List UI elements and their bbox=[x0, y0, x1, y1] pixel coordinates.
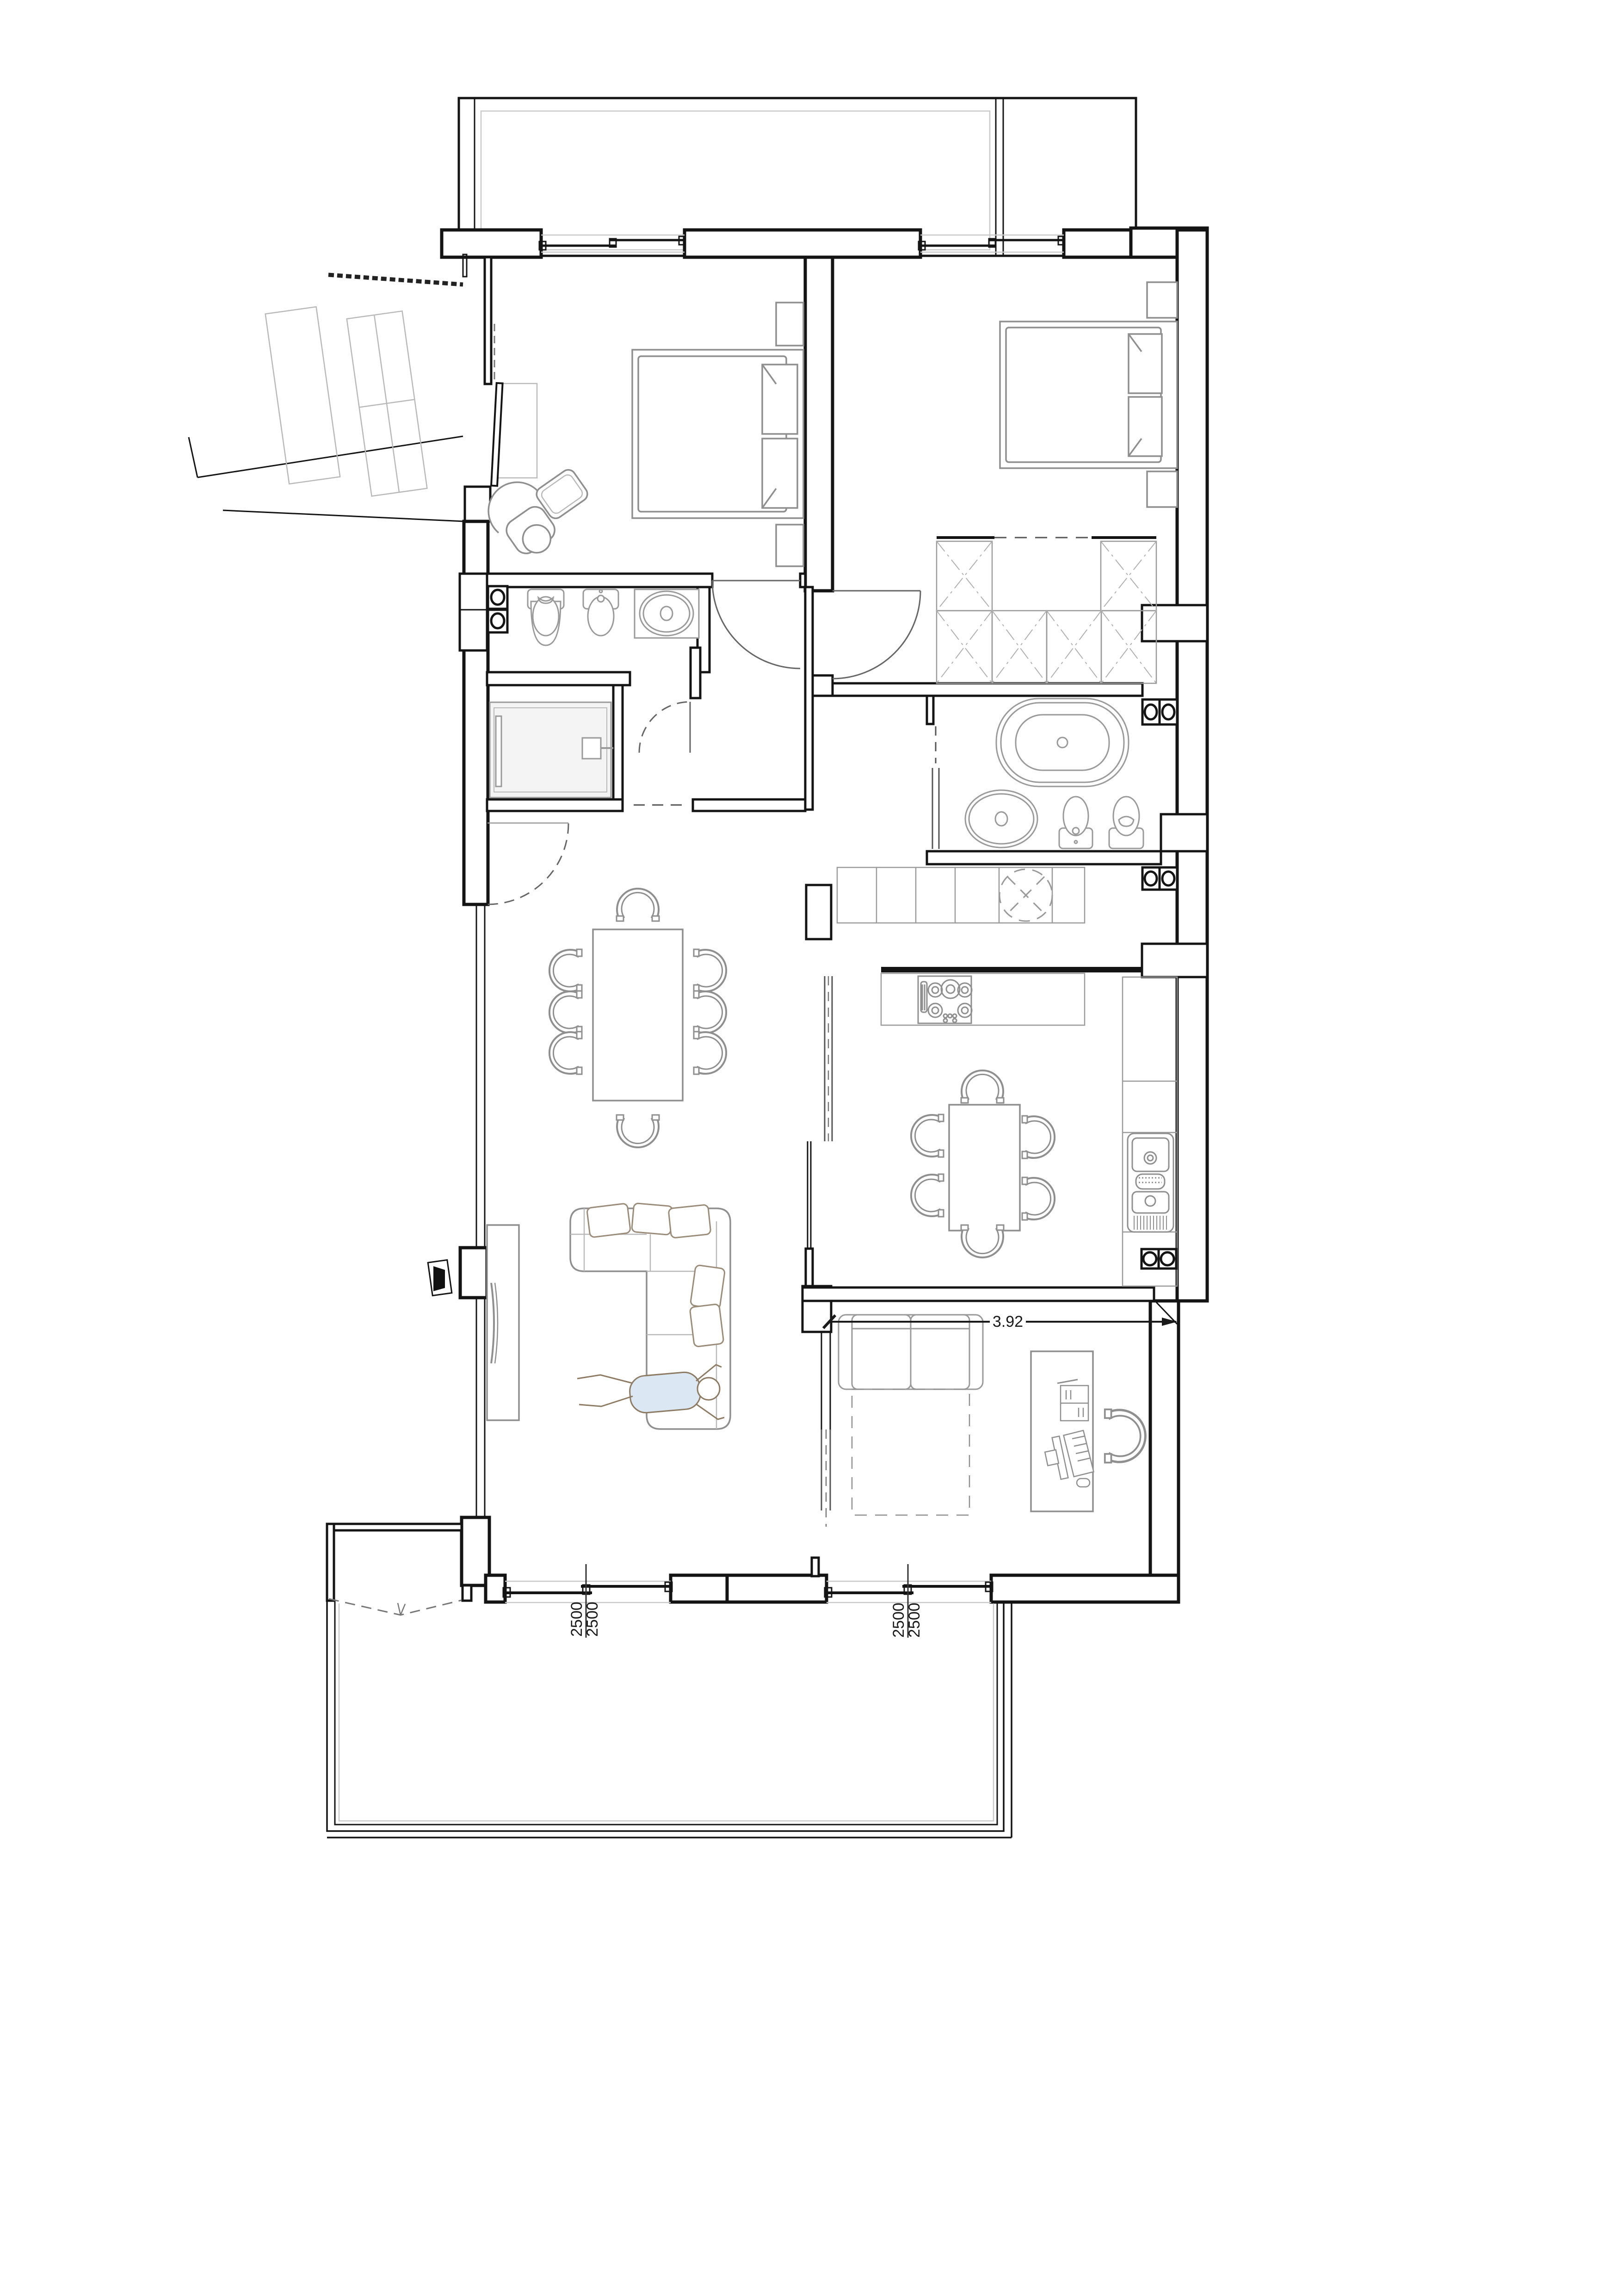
washbasin bbox=[635, 589, 699, 638]
wall-hall-right bbox=[805, 587, 813, 810]
upper-cabinets bbox=[837, 867, 1085, 923]
balcony-store bbox=[327, 1524, 462, 1601]
tv-console bbox=[487, 1225, 519, 1420]
closet bbox=[937, 538, 1156, 683]
toilet bbox=[528, 589, 564, 645]
bedroom2 bbox=[833, 282, 1177, 679]
wall-segment bbox=[727, 1575, 827, 1602]
wall-left-upper bbox=[485, 257, 491, 384]
wall-left-pier bbox=[460, 1248, 487, 1298]
kitchen-table-set bbox=[911, 1071, 1055, 1257]
door-swing-dashed bbox=[639, 702, 690, 753]
kitchen-sink bbox=[1128, 1133, 1173, 1232]
nightstand bbox=[1147, 282, 1177, 318]
bathroom2 bbox=[932, 699, 1177, 849]
wall-pier bbox=[486, 1575, 505, 1602]
nightstand bbox=[776, 303, 803, 346]
entry-mat bbox=[497, 384, 537, 478]
gas-hob bbox=[918, 976, 972, 1023]
washer-valves-kitchen bbox=[1142, 867, 1177, 890]
shower-control bbox=[582, 738, 601, 759]
washer-valves-sink bbox=[1142, 1249, 1176, 1269]
nightstand bbox=[776, 525, 803, 566]
desk bbox=[1031, 1351, 1093, 1511]
entry-wall-line bbox=[223, 510, 464, 521]
wall-bath2-bottom bbox=[927, 851, 1161, 864]
sofa-bed-open-dashed bbox=[852, 1389, 969, 1515]
entry-door[interactable] bbox=[491, 383, 503, 486]
wall-hall-bottom bbox=[693, 799, 805, 811]
wall-hall-bottom bbox=[487, 799, 623, 811]
window-dim-label: 2500 bbox=[568, 1602, 586, 1637]
toilet bbox=[1109, 797, 1143, 848]
living-door-swing bbox=[488, 823, 568, 904]
tall-cabinets-right bbox=[1123, 977, 1177, 1286]
hall bbox=[488, 823, 568, 904]
window-dim-label: 2500 bbox=[890, 1603, 907, 1638]
boundary-zigzag bbox=[328, 275, 463, 285]
wall-pier bbox=[671, 1575, 727, 1602]
wall-pier bbox=[442, 230, 541, 257]
counter bbox=[881, 973, 1085, 1025]
balcony-bottom bbox=[327, 1524, 1012, 1838]
floor-plan-page: 3.92 2500 2500 2500 2500 bbox=[0, 0, 1623, 2296]
dining-table bbox=[593, 929, 683, 1101]
dining-set bbox=[549, 889, 726, 1147]
wall-right-office bbox=[1150, 1301, 1179, 1602]
bidet bbox=[1059, 797, 1092, 848]
bidet bbox=[583, 589, 618, 636]
mouse bbox=[1077, 1479, 1090, 1487]
window-dim-label: 2500 bbox=[906, 1603, 923, 1638]
shower-room bbox=[490, 702, 613, 798]
entry-stairs bbox=[347, 311, 427, 496]
wall-right bbox=[1177, 230, 1207, 1301]
bed-pillow bbox=[1129, 334, 1162, 393]
office-chair bbox=[1105, 1410, 1146, 1463]
wall-hall-top bbox=[487, 574, 712, 587]
washer-valves bbox=[1142, 699, 1177, 724]
exterior-fixture bbox=[433, 1266, 445, 1291]
wall-left bbox=[465, 487, 490, 521]
wall-chunk bbox=[1142, 944, 1207, 977]
bed-pillow bbox=[762, 365, 797, 434]
window-living-right: 2500 2500 bbox=[825, 1564, 993, 1638]
wall-bath1-bottom bbox=[487, 672, 630, 685]
wall-shower-right bbox=[613, 685, 623, 800]
wall-segment bbox=[991, 1575, 1179, 1602]
dimension-label: 3.92 bbox=[993, 1313, 1023, 1331]
door-swing bbox=[833, 591, 920, 679]
wall-bedroom-partition bbox=[805, 257, 833, 591]
washbasin-vessel bbox=[965, 790, 1037, 848]
balcony-door-swing bbox=[329, 1599, 462, 1615]
extractor-vent bbox=[1000, 869, 1052, 921]
wall-kitchen-stub bbox=[806, 885, 831, 939]
wall-left-bath bbox=[460, 574, 487, 650]
sliding-door-office[interactable] bbox=[821, 1430, 830, 1527]
wall-stub bbox=[463, 1585, 471, 1601]
hall-column bbox=[691, 648, 700, 698]
wall-closet-bottom bbox=[833, 683, 1142, 696]
bed-pillow bbox=[1129, 397, 1162, 456]
window-dim-label: 2500 bbox=[584, 1602, 601, 1637]
kitchen-table bbox=[949, 1105, 1020, 1231]
wall-segment bbox=[685, 230, 920, 257]
wall-stub bbox=[812, 1558, 819, 1576]
office-room: 3.92 bbox=[821, 1313, 1177, 1527]
bed-pillow bbox=[762, 439, 797, 508]
nightstand bbox=[1147, 471, 1177, 507]
left-wall-window bbox=[476, 904, 485, 1517]
door-swing bbox=[712, 581, 800, 668]
wall-kitchen-office bbox=[802, 1287, 1154, 1301]
window-living-left: 2500 2500 bbox=[503, 1564, 672, 1638]
sliding-door-kitchen[interactable] bbox=[825, 976, 832, 1141]
wall-chunk bbox=[1161, 814, 1207, 851]
living-room bbox=[487, 1203, 730, 1429]
washer-dryer-stack bbox=[488, 586, 507, 632]
shower-drain bbox=[496, 716, 501, 786]
floor-plan: 3.92 2500 2500 2500 2500 bbox=[0, 0, 1623, 2296]
freestanding-bathtub bbox=[996, 699, 1129, 786]
sofa-bed bbox=[839, 1315, 983, 1389]
